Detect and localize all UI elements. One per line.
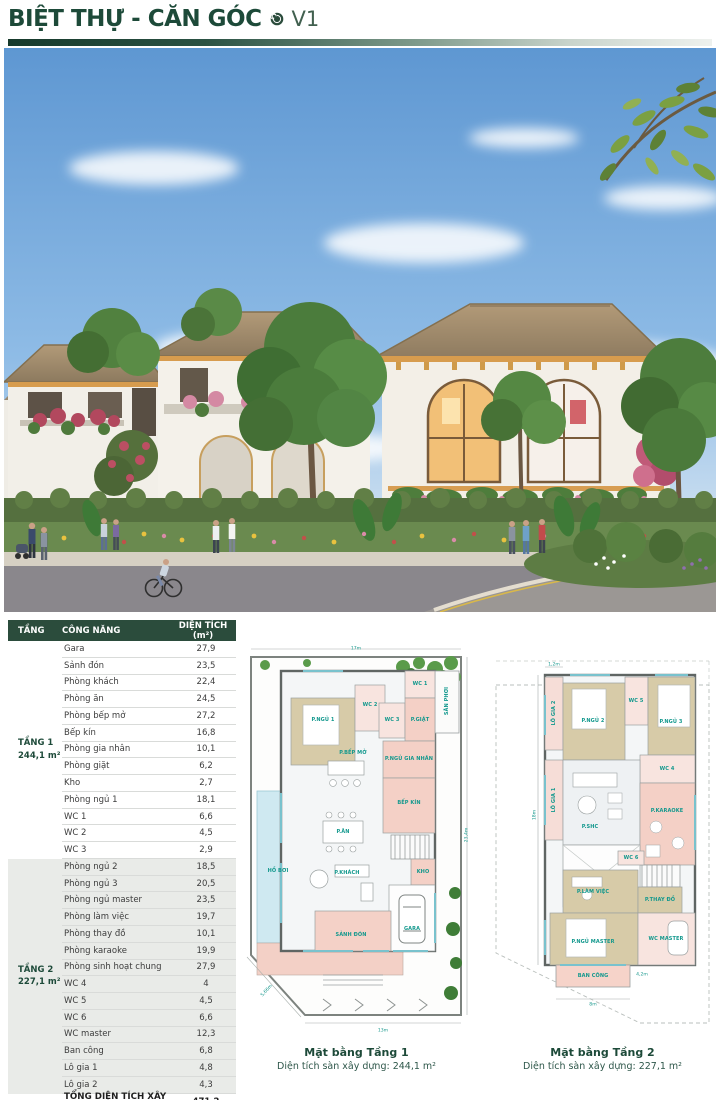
col-tang: TẦNG xyxy=(8,626,62,636)
room-area-value: 10,1 xyxy=(176,744,236,754)
room-area-value: 18,1 xyxy=(176,795,236,805)
table-row: Phòng ngủ 118,1 xyxy=(62,792,236,809)
room-label: P.ĂN xyxy=(336,829,349,835)
room-name: WC 5 xyxy=(62,996,176,1006)
floor-1-rows: Gara27,9Sảnh đón23,5Phòng khách22,4Phòng… xyxy=(62,641,236,859)
room-area-value: 23,5 xyxy=(176,661,236,671)
table-row: Phòng ngủ 320,5 xyxy=(62,876,236,893)
area-table: TẦNG CÔNG NĂNG DIỆN TÍCH (m²) TẦNG 1 244… xyxy=(8,620,236,1100)
floor-plan-1-drawing xyxy=(243,643,470,1041)
room-area-value: 27,9 xyxy=(176,962,236,972)
table-row: Bếp kín16,8 xyxy=(62,725,236,742)
unit-version: V1 xyxy=(291,7,319,31)
floor-area: 244,1 m² xyxy=(18,750,62,763)
spiral-icon xyxy=(270,12,284,26)
dimension-label: 1,2m xyxy=(548,663,560,668)
room-label: WC 3 xyxy=(385,717,400,723)
table-row: WC 44 xyxy=(62,976,236,993)
floor-2-group: TẦNG 2 227,1 m² Phòng ngủ 218,5Phòng ngủ… xyxy=(8,859,236,1094)
room-name: WC master xyxy=(62,1029,176,1039)
table-row: Lô gia 14,8 xyxy=(62,1060,236,1077)
table-row: WC master12,3 xyxy=(62,1027,236,1044)
dimension-label: 17m xyxy=(351,647,361,652)
room-area-value: 10,1 xyxy=(176,929,236,939)
room-label: WC 2 xyxy=(363,702,378,708)
room-label: WC MASTER xyxy=(649,936,684,942)
floor-2-label: TẦNG 2 227,1 m² xyxy=(8,859,62,1094)
room-label: P.THAY ĐỒ xyxy=(645,897,675,903)
room-name: Phòng ngủ 3 xyxy=(62,879,176,889)
brochure-page: BIỆT THỰ - CĂN GÓC V1 xyxy=(0,0,720,1100)
floor-plan-1: P.NGỦ 1 WC 2 WC 1 SÂN PHƠI WC 3 P.GIẶT P… xyxy=(243,643,470,1041)
room-label: SÂN PHƠI xyxy=(444,687,450,715)
room-name: WC 2 xyxy=(62,828,176,838)
room-name: Phòng khách xyxy=(62,677,176,687)
room-area-value: 4,5 xyxy=(176,996,236,1006)
room-name: Sảnh đón xyxy=(62,661,176,671)
room-name: Phòng thay đồ xyxy=(62,929,176,939)
room-name: Lô gia 1 xyxy=(62,1063,176,1073)
table-row: WC 66,6 xyxy=(62,1010,236,1027)
room-area-value: 4,3 xyxy=(176,1080,236,1090)
room-area-value: 2,7 xyxy=(176,778,236,788)
room-label: LÔ GIA 1 xyxy=(551,788,557,813)
table-row: WC 16,6 xyxy=(62,809,236,826)
room-name: Phòng ngủ master xyxy=(62,895,176,905)
total-label: TỔNG DIỆN TÍCH XÂY DỰNG xyxy=(62,1092,176,1100)
dimension-label: 8m xyxy=(589,1003,596,1008)
table-row: WC 24,5 xyxy=(62,825,236,842)
room-area-value: 24,5 xyxy=(176,694,236,704)
dimension-label: 18m xyxy=(533,810,538,820)
room-label: P.NGỦ MASTER xyxy=(571,939,614,945)
room-name: Phòng ngủ 1 xyxy=(62,795,176,805)
room-label: BẾP KÍN xyxy=(397,800,420,806)
table-row: Phòng làm việc19,7 xyxy=(62,909,236,926)
room-label: P.NGỦ 3 xyxy=(660,719,683,725)
col-cong-nang: CÔNG NĂNG xyxy=(62,626,170,636)
room-label: P.NGỦ 2 xyxy=(582,718,605,724)
room-label: P.LÀM VIỆC xyxy=(577,889,609,895)
room-area-value: 19,9 xyxy=(176,946,236,956)
room-name: Phòng sinh hoạt chung xyxy=(62,962,176,972)
floor-name: TẦNG 1 xyxy=(18,737,62,750)
room-label: WC 1 xyxy=(413,681,428,687)
table-row: Ban công6,8 xyxy=(62,1043,236,1060)
room-area-value: 4 xyxy=(176,979,236,989)
room-label: WC 5 xyxy=(629,698,644,704)
room-name: WC 6 xyxy=(62,1013,176,1023)
table-row: WC 54,5 xyxy=(62,993,236,1010)
villa-rendering-image xyxy=(4,48,716,612)
table-row: Phòng thay đồ10,1 xyxy=(62,926,236,943)
room-name: Gara xyxy=(62,644,176,654)
room-area-value: 4,8 xyxy=(176,1063,236,1073)
room-area-value: 6,6 xyxy=(176,812,236,822)
room-area-value: 2,9 xyxy=(176,845,236,855)
room-name: WC 4 xyxy=(62,979,176,989)
floor-1-group: TẦNG 1 244,1 m² Gara27,9Sảnh đón23,5Phòn… xyxy=(8,641,236,859)
table-row: Phòng ăn24,5 xyxy=(62,691,236,708)
room-label: LÔ GIA 2 xyxy=(551,701,557,726)
total-built-area-row: TỔNG DIỆN TÍCH XÂY DỰNG 471,2 xyxy=(8,1094,236,1100)
room-name: Bếp kín xyxy=(62,728,176,738)
room-name: Phòng ngủ 2 xyxy=(62,862,176,872)
page-title: BIỆT THỰ - CĂN GÓC xyxy=(8,6,261,32)
table-row: Phòng bếp mở27,2 xyxy=(62,708,236,725)
room-label: HỒ BƠI xyxy=(268,868,289,874)
dimension-label: 13m xyxy=(378,1029,388,1034)
room-name: Phòng bếp mở xyxy=(62,711,176,721)
plan-1-title: Mặt bằng Tầng 1 xyxy=(243,1046,470,1059)
plan-2-caption: Mặt bằng Tầng 2 Diện tích sàn xây dựng: … xyxy=(490,1046,715,1072)
room-name: Phòng giặt xyxy=(62,761,176,771)
table-row: WC 32,9 xyxy=(62,842,236,859)
table-row: Phòng ngủ 218,5 xyxy=(62,859,236,876)
room-label: GARA xyxy=(404,926,420,932)
room-label: WC 6 xyxy=(624,855,639,861)
room-area-value: 20,5 xyxy=(176,879,236,889)
room-name: Phòng làm việc xyxy=(62,912,176,922)
room-label: P.GIẶT xyxy=(411,717,430,723)
room-area-value: 6,6 xyxy=(176,1013,236,1023)
floor-plan-2: LÔ GIA 2 P.NGỦ 2 WC 5 P.NGỦ 3 WC 4 LÔ GI… xyxy=(490,655,715,1030)
room-area-value: 6,2 xyxy=(176,761,236,771)
room-name: Phòng karaoke xyxy=(62,946,176,956)
room-area-value: 27,2 xyxy=(176,711,236,721)
table-row: Phòng ngủ master23,5 xyxy=(62,892,236,909)
room-label: KHO xyxy=(417,869,430,875)
room-label: BAN CÔNG xyxy=(578,973,609,979)
room-name: WC 3 xyxy=(62,845,176,855)
room-area-value: 4,5 xyxy=(176,828,236,838)
room-label: P.SHC xyxy=(582,824,599,830)
table-row: Phòng gia nhân10,1 xyxy=(62,742,236,759)
table-row: Gara27,9 xyxy=(62,641,236,658)
plan-2-subtitle: Diện tích sàn xây dựng: 227,1 m² xyxy=(490,1061,715,1072)
room-area-value: 18,5 xyxy=(176,862,236,872)
room-name: Kho xyxy=(62,778,176,788)
room-label: P.KARAOKE xyxy=(651,808,684,814)
room-label: P.NGỦ 1 xyxy=(312,717,335,723)
table-row: Sảnh đón23,5 xyxy=(62,658,236,675)
page-header: BIỆT THỰ - CĂN GÓC V1 xyxy=(8,6,319,32)
dimension-label: 23,4m xyxy=(465,828,470,843)
divider-gradient-bar xyxy=(8,39,712,46)
table-row: Phòng giặt6,2 xyxy=(62,758,236,775)
room-name: Lô gia 2 xyxy=(62,1080,176,1090)
room-area-value: 19,7 xyxy=(176,912,236,922)
table-row: Phòng khách22,4 xyxy=(62,675,236,692)
room-area-value: 6,8 xyxy=(176,1046,236,1056)
room-area-value: 16,8 xyxy=(176,728,236,738)
table-row: Kho2,7 xyxy=(62,775,236,792)
room-name: Ban công xyxy=(62,1046,176,1056)
room-name: WC 1 xyxy=(62,812,176,822)
room-label: P.BẾP MỞ xyxy=(339,750,366,756)
room-label: SẢNH ĐÓN xyxy=(335,932,366,938)
room-area-value: 23,5 xyxy=(176,895,236,905)
table-row: Phòng karaoke19,9 xyxy=(62,943,236,960)
plan-1-caption: Mặt bằng Tầng 1 Diện tích sàn xây dựng: … xyxy=(243,1046,470,1072)
room-label: P.NGỦ GIA NHÂN xyxy=(385,756,433,762)
plan-1-subtitle: Diện tích sàn xây dựng: 244,1 m² xyxy=(243,1061,470,1072)
room-area-value: 27,9 xyxy=(176,644,236,654)
table-row: Phòng sinh hoạt chung27,9 xyxy=(62,960,236,977)
dimension-label: 4,2m xyxy=(636,973,648,978)
col-dien-tich: DIỆN TÍCH (m²) xyxy=(170,621,236,641)
room-name: Phòng ăn xyxy=(62,694,176,704)
table-header: TẦNG CÔNG NĂNG DIỆN TÍCH (m²) xyxy=(8,620,236,641)
room-label: P.KHÁCH xyxy=(334,870,359,876)
room-label: WC 4 xyxy=(660,766,675,772)
floor-1-label: TẦNG 1 244,1 m² xyxy=(8,641,62,859)
room-area-value: 12,3 xyxy=(176,1029,236,1039)
floor-area: 227,1 m² xyxy=(18,976,62,989)
room-name: Phòng gia nhân xyxy=(62,744,176,754)
floor-name: TẦNG 2 xyxy=(18,964,62,977)
room-area-value: 22,4 xyxy=(176,677,236,687)
plan-2-title: Mặt bằng Tầng 2 xyxy=(490,1046,715,1059)
floor-2-rows: Phòng ngủ 218,5Phòng ngủ 320,5Phòng ngủ … xyxy=(62,859,236,1094)
